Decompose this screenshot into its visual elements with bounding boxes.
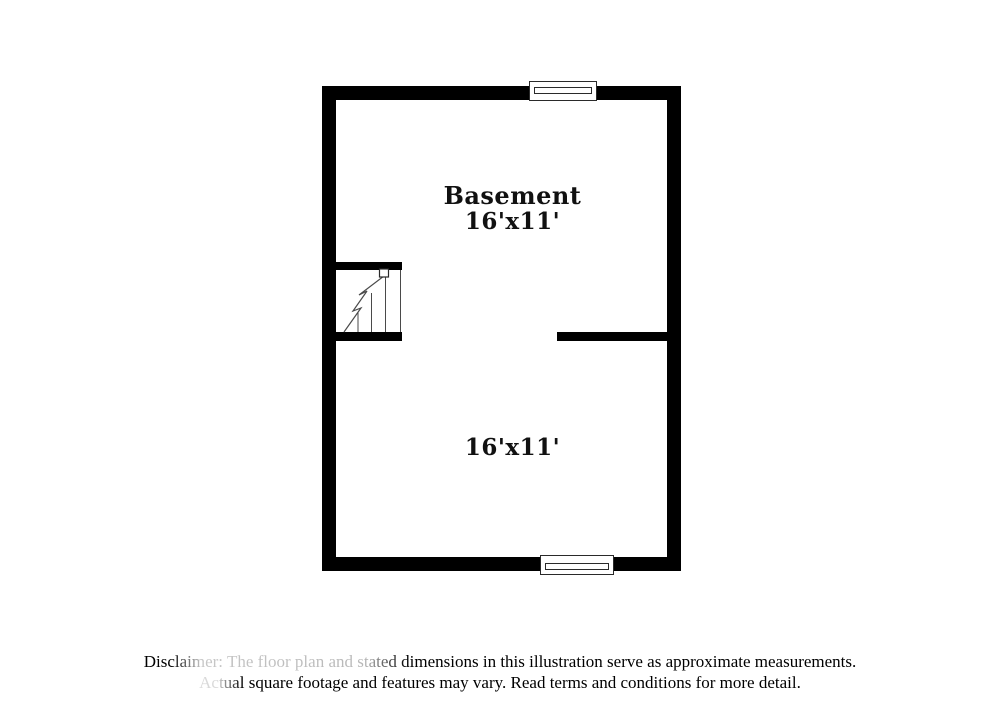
stair-newel-post: [380, 269, 389, 277]
stair-top-wall: [336, 262, 402, 270]
floor-plan-page: Basement 16'x11' 16'x11' Disclaimer: The…: [0, 0, 1000, 727]
room-dimensions: 16'x11': [336, 209, 689, 235]
interior-wall: [557, 332, 669, 341]
window-pane: [545, 563, 609, 570]
stair-bottom-wall: [336, 332, 402, 341]
window-top: [529, 81, 597, 101]
window-pane: [534, 87, 592, 94]
staircase: [336, 262, 402, 341]
disclaimer: Disclaimer: The floor plan and stated di…: [0, 651, 1000, 693]
room-label-lower: 16'x11': [336, 435, 689, 461]
room-name: Basement: [336, 183, 689, 209]
basement-floor-plan: Basement 16'x11' 16'x11': [0, 0, 1000, 727]
disclaimer-line-2: Actual square footage and features may v…: [199, 672, 801, 693]
stair-direction-line: [344, 276, 384, 332]
window-bottom: [540, 555, 614, 575]
room-dimensions: 16'x11': [336, 435, 689, 461]
room-label-basement: Basement 16'x11': [336, 183, 689, 235]
disclaimer-line-1: Disclaimer: The floor plan and stated di…: [144, 651, 857, 672]
